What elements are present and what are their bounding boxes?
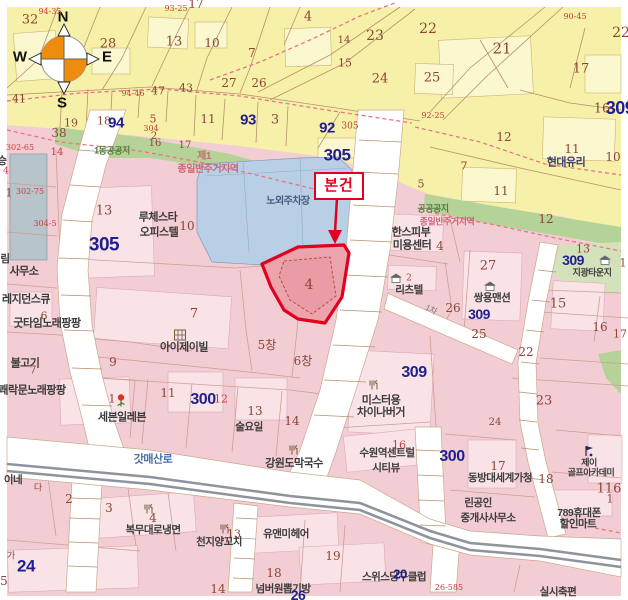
parcel-number: 13 — [166, 36, 183, 49]
zone-label-green: 1동공공지 — [94, 147, 130, 156]
parcel-number: 13 — [227, 529, 241, 540]
poi-label: 사무소 — [10, 267, 39, 278]
parcel-number: 6창 — [294, 355, 313, 367]
poi-label: 현대유리 — [547, 158, 585, 169]
zone-label: 제1 — [197, 152, 211, 162]
poi-label: 레지던스큐 — [2, 295, 50, 306]
poi-label: 유앤미헤어 — [263, 529, 309, 540]
parcel-number: 4 — [304, 11, 312, 24]
poi-label: 오피스텔 — [140, 228, 178, 239]
parcel-number: 9 — [109, 356, 117, 368]
block-number: 300 — [190, 392, 215, 408]
lot-number: 12 — [214, 394, 228, 405]
block-number: 26 — [291, 588, 306, 600]
parcel-number: 47 — [151, 86, 165, 97]
parcel-number: 19 — [325, 550, 340, 562]
lot-number: 302-65 — [6, 144, 34, 152]
poi-label: 굿타임노래팡팡 — [13, 319, 80, 330]
parcel-number: 23 — [536, 395, 553, 408]
parcel-number: 7 — [461, 161, 468, 172]
block-number: 24 — [17, 558, 35, 575]
parcel-number: 1 — [109, 394, 116, 405]
zone-label: 종일반주거지역 — [420, 218, 474, 227]
parcel-number: 17 — [613, 329, 627, 340]
poi-label: 차이나버거 — [357, 408, 405, 419]
restaurant-icon — [368, 380, 380, 391]
parcel-number: 4 — [149, 512, 157, 524]
parcel-number: 2 — [65, 493, 73, 505]
poi-label: 승 — [0, 156, 7, 167]
parcel-number: 12 — [496, 131, 511, 143]
parcel-number: 14 — [284, 415, 299, 427]
parcel-number: 38 — [51, 127, 66, 139]
poi-label: 이네 — [4, 475, 22, 486]
parcel-number: 43 — [179, 83, 193, 94]
parcel-number: 21 — [492, 42, 511, 57]
parcel-number: 17 — [188, 0, 203, 10]
parcel-number: 1 — [6, 188, 13, 199]
parcel-number: 17 — [179, 141, 192, 151]
map-canvas[interactable]: 본건 N W E S 32 94-35 17 93-25 4 23 22 14 … — [0, 0, 628, 600]
lot-number: 2 — [406, 275, 412, 284]
parcel-number: 27 — [480, 260, 497, 273]
block-number: 309 — [468, 307, 490, 321]
parcel-number: 다 — [34, 485, 42, 494]
poi-label: 중개사사무소 — [461, 513, 516, 524]
parcel-number: 16 — [592, 321, 607, 333]
compass-east-label: E — [102, 50, 112, 65]
poi-label: 세븐일레븐 — [98, 413, 146, 424]
building-icon — [174, 329, 187, 341]
poi-label: 789휴대폰 — [557, 508, 601, 519]
parcel-number: 18 — [266, 567, 281, 579]
poi-label: 미스터용 — [362, 396, 400, 407]
parcel-number: 5 — [150, 114, 157, 125]
block-number: 309 — [562, 253, 584, 267]
parcel-number: 3 — [105, 502, 113, 514]
parcel-number: 28 — [100, 38, 117, 51]
parcel-number: 10 — [605, 151, 620, 163]
parcel-number: 13 — [247, 405, 262, 417]
parking-label: 노외주차장 — [266, 197, 310, 207]
poi-label: 림 — [0, 254, 9, 265]
poi-label: 술요일 — [235, 422, 262, 433]
compass-west-label: W — [13, 50, 27, 65]
poi-label: 지광타운지 — [573, 269, 612, 278]
poi-label: 리츠텔 — [395, 285, 422, 296]
poi-label: 골프아카데미 — [568, 469, 615, 478]
lot-number: 26-585 — [435, 584, 463, 592]
parcel-number: 11 — [160, 387, 175, 399]
parcel-number: 3 — [271, 114, 279, 127]
poi-label: 강원도막국수 — [265, 459, 323, 470]
zone-label: 종일반주거지역 — [178, 165, 239, 175]
parcel-number: 14 — [210, 583, 225, 595]
parcel-number: 7 — [30, 365, 37, 376]
parcel-number: 32 — [22, 14, 39, 27]
lot-number: 94-35 — [38, 8, 61, 16]
parcel-number: 25 — [471, 328, 486, 340]
parcel-number: 41 — [12, 94, 26, 105]
parcel-number: 5창 — [258, 339, 277, 351]
parcel-number: 23 — [366, 29, 384, 43]
subject-marker-label: 본건 — [314, 172, 364, 200]
parcel-number: 11 — [493, 185, 508, 197]
lot-number: 90-45 — [563, 13, 586, 21]
poi-label: 미용센터 — [393, 241, 431, 252]
lot-number: 305 — [341, 123, 358, 132]
poi-label: 쌍용맨션 — [474, 293, 511, 304]
parcel-number: 1 — [620, 258, 627, 269]
parcel-number: 27 — [221, 77, 236, 89]
poi-label: 제이 — [581, 459, 597, 468]
block-number: 20 — [393, 568, 406, 581]
parcel-number: 17 — [573, 63, 590, 76]
lot-number: 14 — [51, 148, 64, 158]
parcel-number: 12 — [538, 213, 553, 225]
poi-label: 린공인 — [464, 498, 491, 509]
lot-number: 92-25 — [421, 112, 444, 120]
compass-south-label: S — [57, 96, 67, 111]
parcel-number: 25 — [424, 72, 441, 85]
poi-label: 시티뷰 — [372, 463, 399, 474]
lot-number: 93-25 — [164, 5, 187, 13]
gray-building — [10, 154, 47, 260]
parcel-number: 14 — [338, 36, 351, 46]
lot-number: 4 — [3, 168, 9, 177]
golf-icon — [583, 445, 595, 457]
parcel-number: 16 — [149, 139, 162, 149]
parcel-number: 22 — [419, 22, 437, 36]
poi-label: 쾌락문노래팡팡 — [0, 386, 66, 397]
parcel-number: 17 — [490, 460, 505, 472]
parcel-number: 24 — [372, 73, 389, 86]
house-icon — [598, 255, 612, 266]
parcel-number: 가 — [7, 553, 15, 562]
poi-label: 한스피부 — [392, 228, 430, 239]
parcel-number: 10 — [204, 37, 219, 49]
parcel-number: 15 — [338, 58, 352, 69]
parcel-number: 11 — [564, 143, 579, 155]
block-number: 305 — [89, 236, 119, 255]
parcel-number: 26 — [251, 77, 266, 89]
block-number: 309 — [401, 365, 426, 381]
zone-label-green: 공공공지 — [417, 205, 448, 214]
parcel-number: 22 — [612, 26, 628, 40]
poi-label: 복무대로냉면 — [126, 525, 181, 536]
poi-label: 실시축편 — [540, 587, 577, 598]
parcel-number: 5 — [418, 179, 425, 190]
parcel-number: 18 — [538, 473, 553, 485]
block-number: 94 — [108, 116, 124, 131]
subject-parcel-number: 4 — [305, 278, 314, 292]
flower-icon — [116, 394, 127, 409]
parcel-number: 22 — [518, 346, 533, 358]
block-number: 93 — [240, 113, 256, 128]
lot-number: 304-5 — [33, 220, 56, 228]
poi-label: 아이제이빌 — [160, 343, 208, 354]
block-number: 92 — [319, 121, 335, 136]
poi-label: 할인마트 — [560, 519, 597, 530]
cadastral-map — [0, 0, 628, 600]
block-number: 300 — [439, 449, 464, 465]
block-number: 309 — [606, 99, 628, 117]
parcel-number: 7 — [190, 308, 198, 321]
house-icon — [483, 281, 497, 292]
parcel-number: 15 — [550, 298, 567, 311]
parcel-number: 1 — [607, 494, 614, 505]
poi-label: 루체스타 — [139, 213, 177, 224]
parcel-number: 5 — [0, 575, 8, 587]
parcel-number: 4 — [436, 240, 444, 252]
lot-number: 94-46 — [121, 90, 144, 98]
parcel-number: 10 — [179, 220, 194, 232]
poi-label: 수원역센트럴 — [360, 448, 415, 459]
block-number: 305 — [324, 147, 351, 164]
parcel-number: 7 — [248, 47, 256, 59]
parcel-number: 26 — [445, 302, 460, 314]
house-icon — [389, 273, 403, 284]
restaurant-icon — [288, 445, 300, 456]
parcel-number: 24 — [489, 418, 502, 428]
road-name: 갓매산로 — [134, 455, 172, 466]
poi-label: 동방대세계가청 — [468, 473, 532, 484]
parcel-number: 11 — [200, 113, 215, 125]
parcel-number: 13 — [96, 205, 113, 218]
lot-number: 302-75 — [16, 188, 44, 196]
